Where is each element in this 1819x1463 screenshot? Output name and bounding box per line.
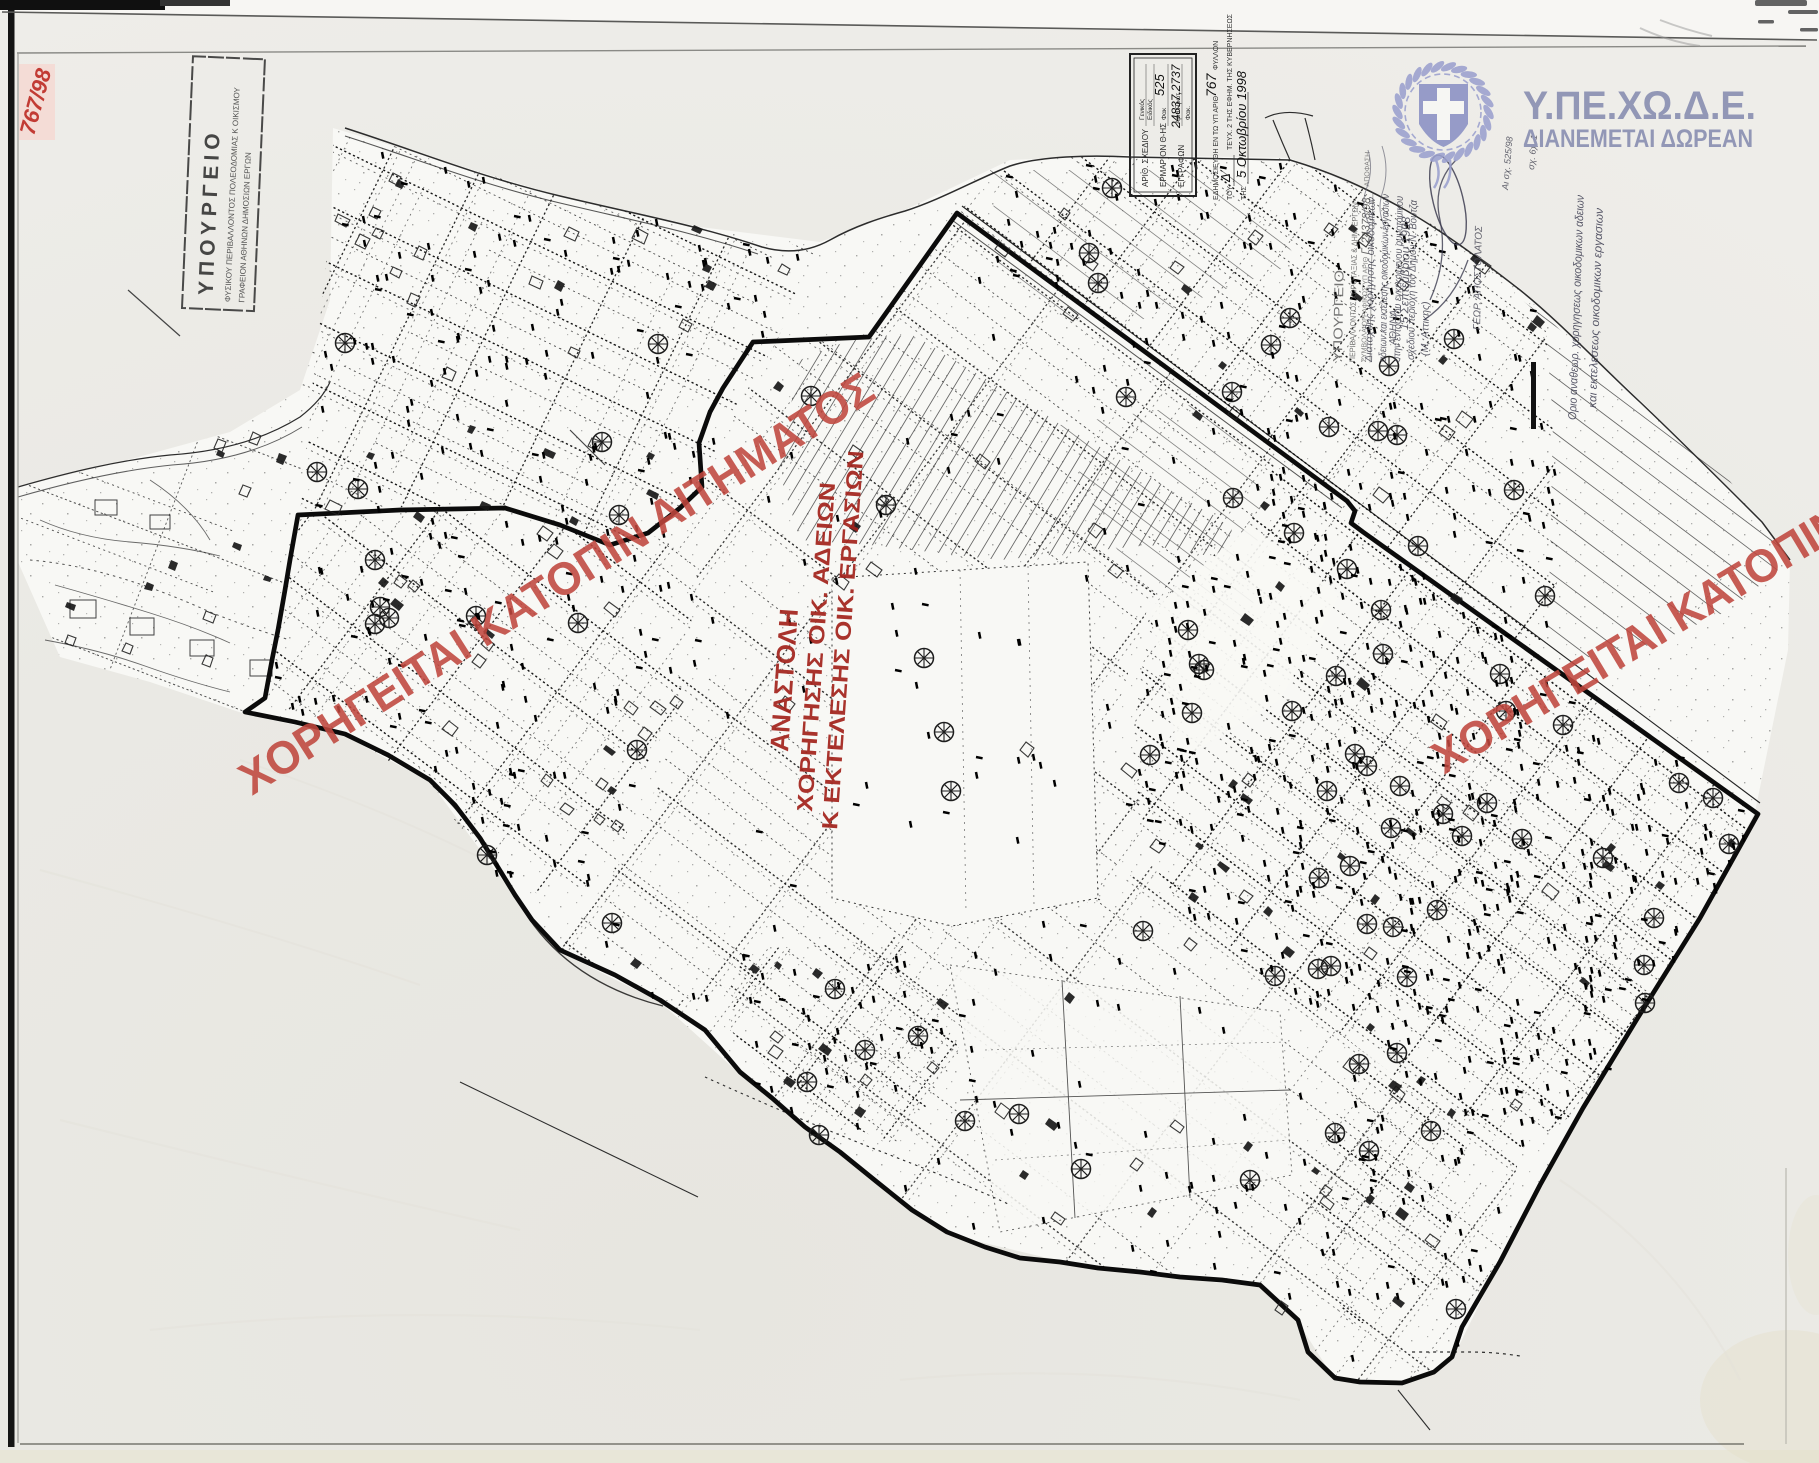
svg-text:ΕΔΗΜΟΣΙΕΥΘΗ ΕΝ ΤΩ ΥΠ ΑΡΙΘ: ΕΔΗΜΟΣΙΕΥΘΗ ΕΝ ΤΩ ΥΠ ΑΡΙΘ [1213,95,1220,200]
svg-text:24837,2737: 24837,2737 [1169,63,1183,129]
svg-text:15 Σεπτεμβριου 1998: 15 Σεπτεμβριου 1998 [1397,216,1413,330]
svg-text:Δ΄: Δ΄ [1218,169,1233,183]
svg-text:Φακ: Φακ [1161,107,1168,120]
svg-text:5 Οκτωβρίου 1998: 5 Οκτωβρίου 1998 [1234,70,1249,178]
svg-text:Υ.ΠΕ.ΧΩ.Δ.Ε.: Υ.ΠΕ.ΧΩ.Δ.Ε. [1523,84,1756,128]
svg-text:Ειδικός: Ειδικός [1146,99,1154,120]
svg-text:ΕΓΓΡΑΦΩΝ: ΕΓΓΡΑΦΩΝ [1177,145,1186,187]
svg-text:ΓΕΩΡ. ΑΠΟΣΤΟΛΑΤΟΣ: ΓΕΩΡ. ΑΠΟΣΤΟΛΑΤΟΣ [1472,225,1485,330]
svg-text:ΦΥΛΛΟΝ: ΦΥΛΛΟΝ [1213,41,1220,70]
svg-text:ΕΡΜΑΡΙΟΝ Θ-ΗΣ: ΕΡΜΑΡΙΟΝ Θ-ΗΣ [1159,123,1168,187]
svg-text:ΤΕΥΧ. 2 ΤΗΣ ΕΦΗΜ. ΤΗΣ ΚΥΒΕΡΝΗΣ: ΤΕΥΧ. 2 ΤΗΣ ΕΦΗΜ. ΤΗΣ ΚΥΒΕΡΝΗΣΕΩΣ [1227,13,1234,150]
svg-text:767: 767 [1203,72,1219,97]
svg-text:ΥΠΟΥΡΓΕΙΟ: ΥΠΟΥΡΓΕΙΟ [1330,270,1347,362]
svg-text:ΑΡΙΘ. ΣΧΕΔΙΟΥ: ΑΡΙΘ. ΣΧΕΔΙΟΥ [1141,128,1150,187]
svg-text:(Μ. Αττικης): (Μ. Αττικης) [1419,301,1432,356]
svg-text:Γενικός: Γενικός [1138,99,1146,120]
svg-text:ΔΙΑΝΕΜΕΤΑΙ ΔΩΡΕΑΝ: ΔΙΑΝΕΜΕΤΑΙ ΔΩΡΕΑΝ [1523,125,1753,153]
svg-text:Φακ.: Φακ. [1185,106,1192,120]
svg-text:525: 525 [1152,74,1167,96]
svg-text:ΤΟΥ: ΤΟΥ [1227,186,1234,200]
svg-text:ΤΗΣ: ΤΗΣ [1241,186,1248,200]
